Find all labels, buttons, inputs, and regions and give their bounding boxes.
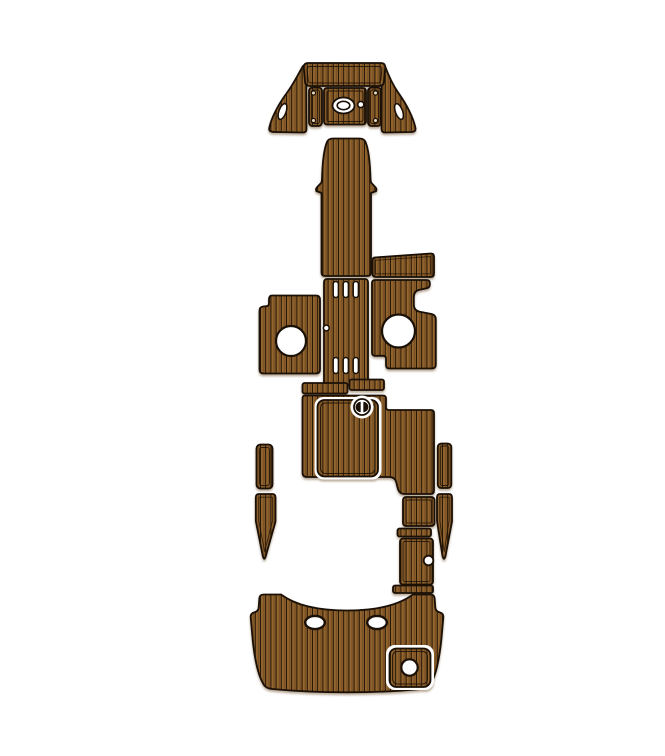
step-strip-left-pad: Gunwale strip (left) xyxy=(257,445,273,489)
screw-mark-icon xyxy=(373,91,377,95)
cleat-oval-cutout xyxy=(305,616,325,629)
vent-slot-cutout xyxy=(333,358,338,374)
stern-bar-lower-pad: Stern thin tread (lower) xyxy=(393,586,433,594)
step-strip-left-shape xyxy=(257,445,273,489)
corner-round-cutout xyxy=(401,659,417,675)
stern-bar-upper-pad: Stern thin tread (upper) xyxy=(398,529,432,537)
stern-bar-upper-shape xyxy=(398,529,432,537)
vent-slot-cutout xyxy=(353,358,358,374)
screw-mark-icon xyxy=(373,118,377,122)
seat-bar-right-shape xyxy=(350,380,385,391)
seat-bar-right-pad: Seat base bar (right) xyxy=(350,380,385,391)
screw-mark-icon xyxy=(311,91,315,95)
stern-square-pad: Stern step square pad xyxy=(403,497,435,526)
screw-mark-icon xyxy=(311,118,315,122)
stern-bar-lower-shape xyxy=(393,586,433,594)
speaker-round-cutout xyxy=(382,315,415,348)
cleat-oval-cutout xyxy=(367,616,387,629)
product-image-canvas: EVA foam faux teak boat deck pad set sho… xyxy=(0,0,665,756)
cockpit-pad-left: Cockpit pad (left) with round speaker cu… xyxy=(260,296,321,374)
stern-square-shape xyxy=(403,497,435,526)
bow-strip-left-pad: Bow narrow strip (left) with two screw m… xyxy=(309,88,322,127)
mid-deck-pad: Mid deck pad with inset engine hatch pan… xyxy=(303,396,435,495)
side-band-pad: Starboard step band pad xyxy=(373,253,435,277)
vent-slot-cutout xyxy=(353,282,358,298)
cockpit-section: Cockpit center column pad with six vent … xyxy=(260,279,436,385)
step-strip-right-pad: Gunwale strip (right) xyxy=(438,444,452,489)
vent-slot-cutout xyxy=(333,282,338,298)
column-side-hole-cutout xyxy=(323,325,329,331)
seat-bar-left-pad: Seat base bar (left) xyxy=(303,383,348,394)
stern-gate-pad: Transom gate pad with round cutout xyxy=(400,539,433,585)
vent-slot-cutout xyxy=(343,358,348,374)
step-strip-right-shape xyxy=(438,444,452,489)
bow-strip-right-pad: Bow narrow strip (right) with two screw … xyxy=(368,88,381,127)
gate-round-cutout xyxy=(424,556,434,566)
bow-walkway-pad: Bow walkway pad xyxy=(316,139,376,277)
anchor-oval-inner-ring xyxy=(337,101,350,109)
bow-walkway-shape xyxy=(316,139,376,277)
vent-slot-cutout xyxy=(343,282,348,298)
bow-hatch-pad: Bow hatch pad with oval anchor cutout an… xyxy=(324,88,366,125)
cockpit-center-column-pad: Cockpit center column pad with six vent … xyxy=(323,279,368,385)
boat-deck-pad-illustration: EVA foam faux teak boat deck pad set sho… xyxy=(0,0,665,756)
bow-hatch-round-cutout xyxy=(358,101,364,107)
seat-bar-left-shape xyxy=(303,383,348,394)
bow-top-band-pad: Bow top arch pad xyxy=(304,63,385,86)
speaker-round-cutout xyxy=(276,326,306,356)
